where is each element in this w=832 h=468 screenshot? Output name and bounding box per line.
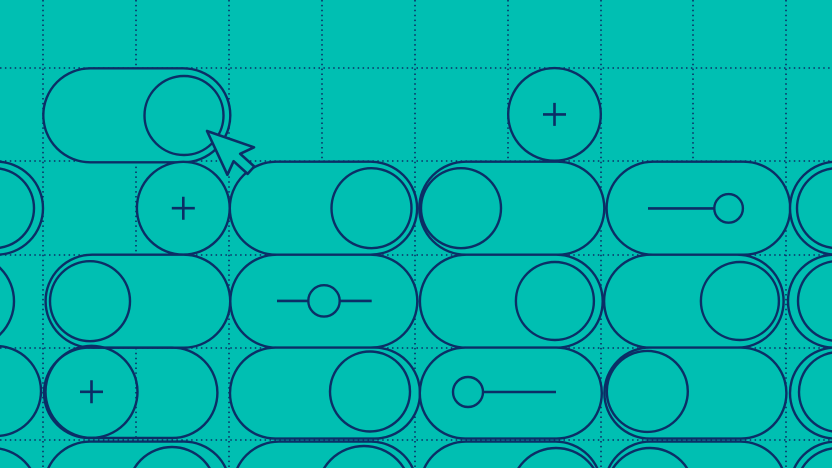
toggle-knob bbox=[421, 168, 501, 248]
toggle-knob bbox=[50, 261, 130, 341]
toggle-knob bbox=[332, 168, 412, 248]
toggle-knob bbox=[701, 262, 779, 340]
toggle-knob bbox=[330, 352, 410, 432]
toggle-knob bbox=[607, 351, 688, 432]
toggle-pill-outline bbox=[44, 348, 217, 438]
toggle-knob bbox=[516, 262, 594, 340]
toggle-pill bbox=[230, 255, 417, 348]
cursor-arrow-icon bbox=[207, 131, 254, 175]
plus-icon bbox=[80, 380, 103, 403]
circle-partial bbox=[0, 448, 38, 468]
circle-partial bbox=[0, 346, 41, 436]
illustration-canvas bbox=[0, 0, 832, 468]
toggle-pill-partial bbox=[0, 255, 14, 348]
toggle-pattern-svg bbox=[0, 0, 832, 468]
